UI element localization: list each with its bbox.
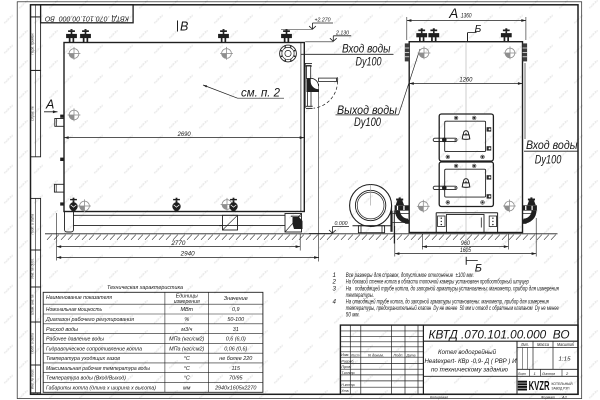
svg-text:KVZR: KVZR — [529, 379, 550, 393]
svg-text:измерения: измерения — [174, 299, 200, 305]
svg-text:Габариты котла (длина х ширина: Габариты котла (длина х ширина х высота) — [46, 386, 156, 392]
svg-text:2690: 2690 — [177, 131, 191, 138]
svg-text:%: % — [184, 317, 189, 323]
svg-text:Heatexpert- КВр -0,9- Д ( РВР: Heatexpert- КВр -0,9- Д ( РВР ) И — [425, 358, 517, 365]
svg-text:Вход воды: Вход воды — [342, 41, 391, 55]
svg-text:Инв. № дубл.: Инв. № дубл. — [31, 258, 35, 278]
svg-text:Взам. инв. №: Взам. инв. № — [31, 294, 35, 315]
svg-text:А: А — [448, 6, 458, 21]
svg-text:МВт: МВт — [180, 307, 193, 313]
svg-text:Подп.: Подп. — [394, 353, 404, 357]
svg-text:Dy100: Dy100 — [535, 152, 562, 166]
svg-text:Подп. и дата: Подп. и дата — [31, 333, 35, 354]
svg-text:м3/ч: м3/ч — [181, 327, 192, 333]
svg-text:Утв.: Утв. — [341, 388, 349, 393]
svg-text:Лит.: Лит. — [520, 342, 529, 347]
svg-text:Dy100: Dy100 — [356, 54, 382, 68]
svg-text:°С: °С — [184, 376, 190, 382]
svg-text:Масштаб: Масштаб — [557, 342, 575, 347]
svg-text:Пров.: Пров. — [341, 364, 351, 369]
svg-text:ЗАВОД РЗП: ЗАВОД РЗП — [552, 387, 570, 391]
svg-text:960: 960 — [461, 240, 470, 247]
svg-text:Справ. №: Справ. № — [31, 106, 35, 121]
svg-text:Масса: Масса — [537, 342, 550, 347]
svg-text:Лист: Лист — [350, 353, 359, 357]
svg-text:Вход воды: Вход воды — [526, 138, 578, 152]
svg-text:КВТД .070.101.00.000 ВО: КВТД .070.101.00.000 ВО — [45, 15, 129, 24]
svg-text:50 мм.: 50 мм. — [346, 312, 360, 319]
svg-text:Наименование показателя: Наименование показателя — [46, 295, 112, 301]
svg-text:70/95: 70/95 — [229, 376, 243, 382]
svg-text:КОТЕЛЬНЫЙ: КОТЕЛЬНЫЙ — [552, 382, 573, 386]
svg-text:2.130: 2.130 — [335, 30, 349, 36]
svg-text:Копировал: Копировал — [430, 396, 449, 400]
svg-text:Н.контр.: Н.контр. — [341, 382, 355, 387]
svg-text:см. п. 2: см. п. 2 — [241, 88, 281, 100]
svg-text:Котел водогрейный: Котел водогрейный — [438, 348, 496, 356]
svg-text:В: В — [180, 20, 188, 34]
svg-text:31: 31 — [233, 327, 239, 333]
svg-text:А3: А3 — [561, 396, 568, 400]
svg-text:Б: Б — [475, 23, 482, 35]
svg-text:Лист: Лист — [517, 371, 526, 376]
svg-text:0.000: 0.000 — [335, 221, 348, 227]
svg-text:2940х1605х2270: 2940х1605х2270 — [214, 386, 256, 392]
svg-text:А: А — [45, 98, 54, 112]
svg-text:Dy100: Dy100 — [354, 115, 381, 129]
svg-text:Значение: Значение — [224, 296, 248, 302]
svg-text:Разраб.: Разраб. — [341, 358, 354, 363]
svg-text:2940: 2940 — [180, 251, 196, 258]
svg-text:°С: °С — [184, 366, 190, 372]
svg-text:Расход воды: Расход воды — [46, 327, 78, 333]
svg-text:2770: 2770 — [170, 240, 186, 247]
svg-text:1:15: 1:15 — [559, 356, 572, 362]
svg-text:Б: Б — [475, 262, 482, 274]
svg-text:4: 4 — [333, 299, 337, 306]
svg-text:+2.270: +2.270 — [314, 18, 330, 24]
svg-text:Инв. № подл.: Инв. № подл. — [31, 369, 35, 390]
svg-text:1: 1 — [534, 371, 536, 376]
svg-text:Т.контр.: Т.контр. — [341, 370, 355, 375]
svg-text:Дата: Дата — [406, 353, 416, 357]
svg-text:не более 220: не более 220 — [219, 356, 252, 362]
svg-text:Изм.: Изм. — [341, 353, 350, 357]
svg-text:температуры, предохранительный: температуры, предохранительный клапан Dу… — [346, 305, 559, 312]
svg-text:КВТД .070.101.00.000 ВО: КВТД .070.101.00.000 ВО — [429, 327, 570, 341]
svg-text:по техническому заданию: по техническому заданию — [431, 366, 508, 374]
svg-text:Номинальная мощность: Номинальная мощность — [46, 307, 102, 313]
svg-text:0,06 (0,6): 0,06 (0,6) — [224, 346, 247, 352]
svg-text:0,9: 0,9 — [232, 307, 240, 313]
svg-text:МПа (кгс/см2): МПа (кгс/см2) — [169, 337, 204, 343]
svg-text:На подводящей трубе котла, д: На подводящей трубе котла, до запорной а… — [346, 285, 559, 292]
svg-text:Температура воды (Вход/Выход): Температура воды (Вход/Выход) — [46, 376, 126, 382]
svg-text:115: 115 — [231, 366, 241, 372]
svg-text:°С: °С — [184, 356, 190, 362]
svg-text:Максимальная рабочая температу: Максимальная рабочая температура воды — [46, 366, 150, 372]
svg-text:МПа (кгс/см2): МПа (кгс/см2) — [169, 346, 204, 352]
svg-text:N докум.: N докум. — [368, 353, 384, 357]
svg-text:3: 3 — [333, 285, 337, 292]
svg-text:Листов: Листов — [541, 371, 555, 376]
svg-text:0,6 (6,0): 0,6 (6,0) — [226, 337, 246, 343]
svg-text:Подп. и дата: Подп. и дата — [31, 214, 35, 235]
svg-text:Гидравлическое сопротивление к: Гидравлическое сопротивление котла — [46, 346, 142, 352]
svg-text:1605: 1605 — [460, 247, 471, 254]
svg-text:Рабочее давление воды: Рабочее давление воды — [46, 337, 104, 343]
svg-text:Температура уходящих газов: Температура уходящих газов — [46, 356, 120, 362]
svg-text:1260: 1260 — [459, 77, 473, 84]
svg-text:Диапазон рабочего регулировани: Диапазон рабочего регулирования — [45, 317, 134, 323]
svg-text:Формат: Формат — [541, 396, 555, 400]
svg-text:мм: мм — [183, 386, 191, 392]
svg-text:Перв. примен.: Перв. примен. — [31, 33, 35, 55]
svg-text:50-100: 50-100 — [227, 317, 244, 323]
svg-text:1360: 1360 — [461, 12, 472, 19]
svg-text:Техническая характеристика: Техническая характеристика — [107, 285, 184, 291]
